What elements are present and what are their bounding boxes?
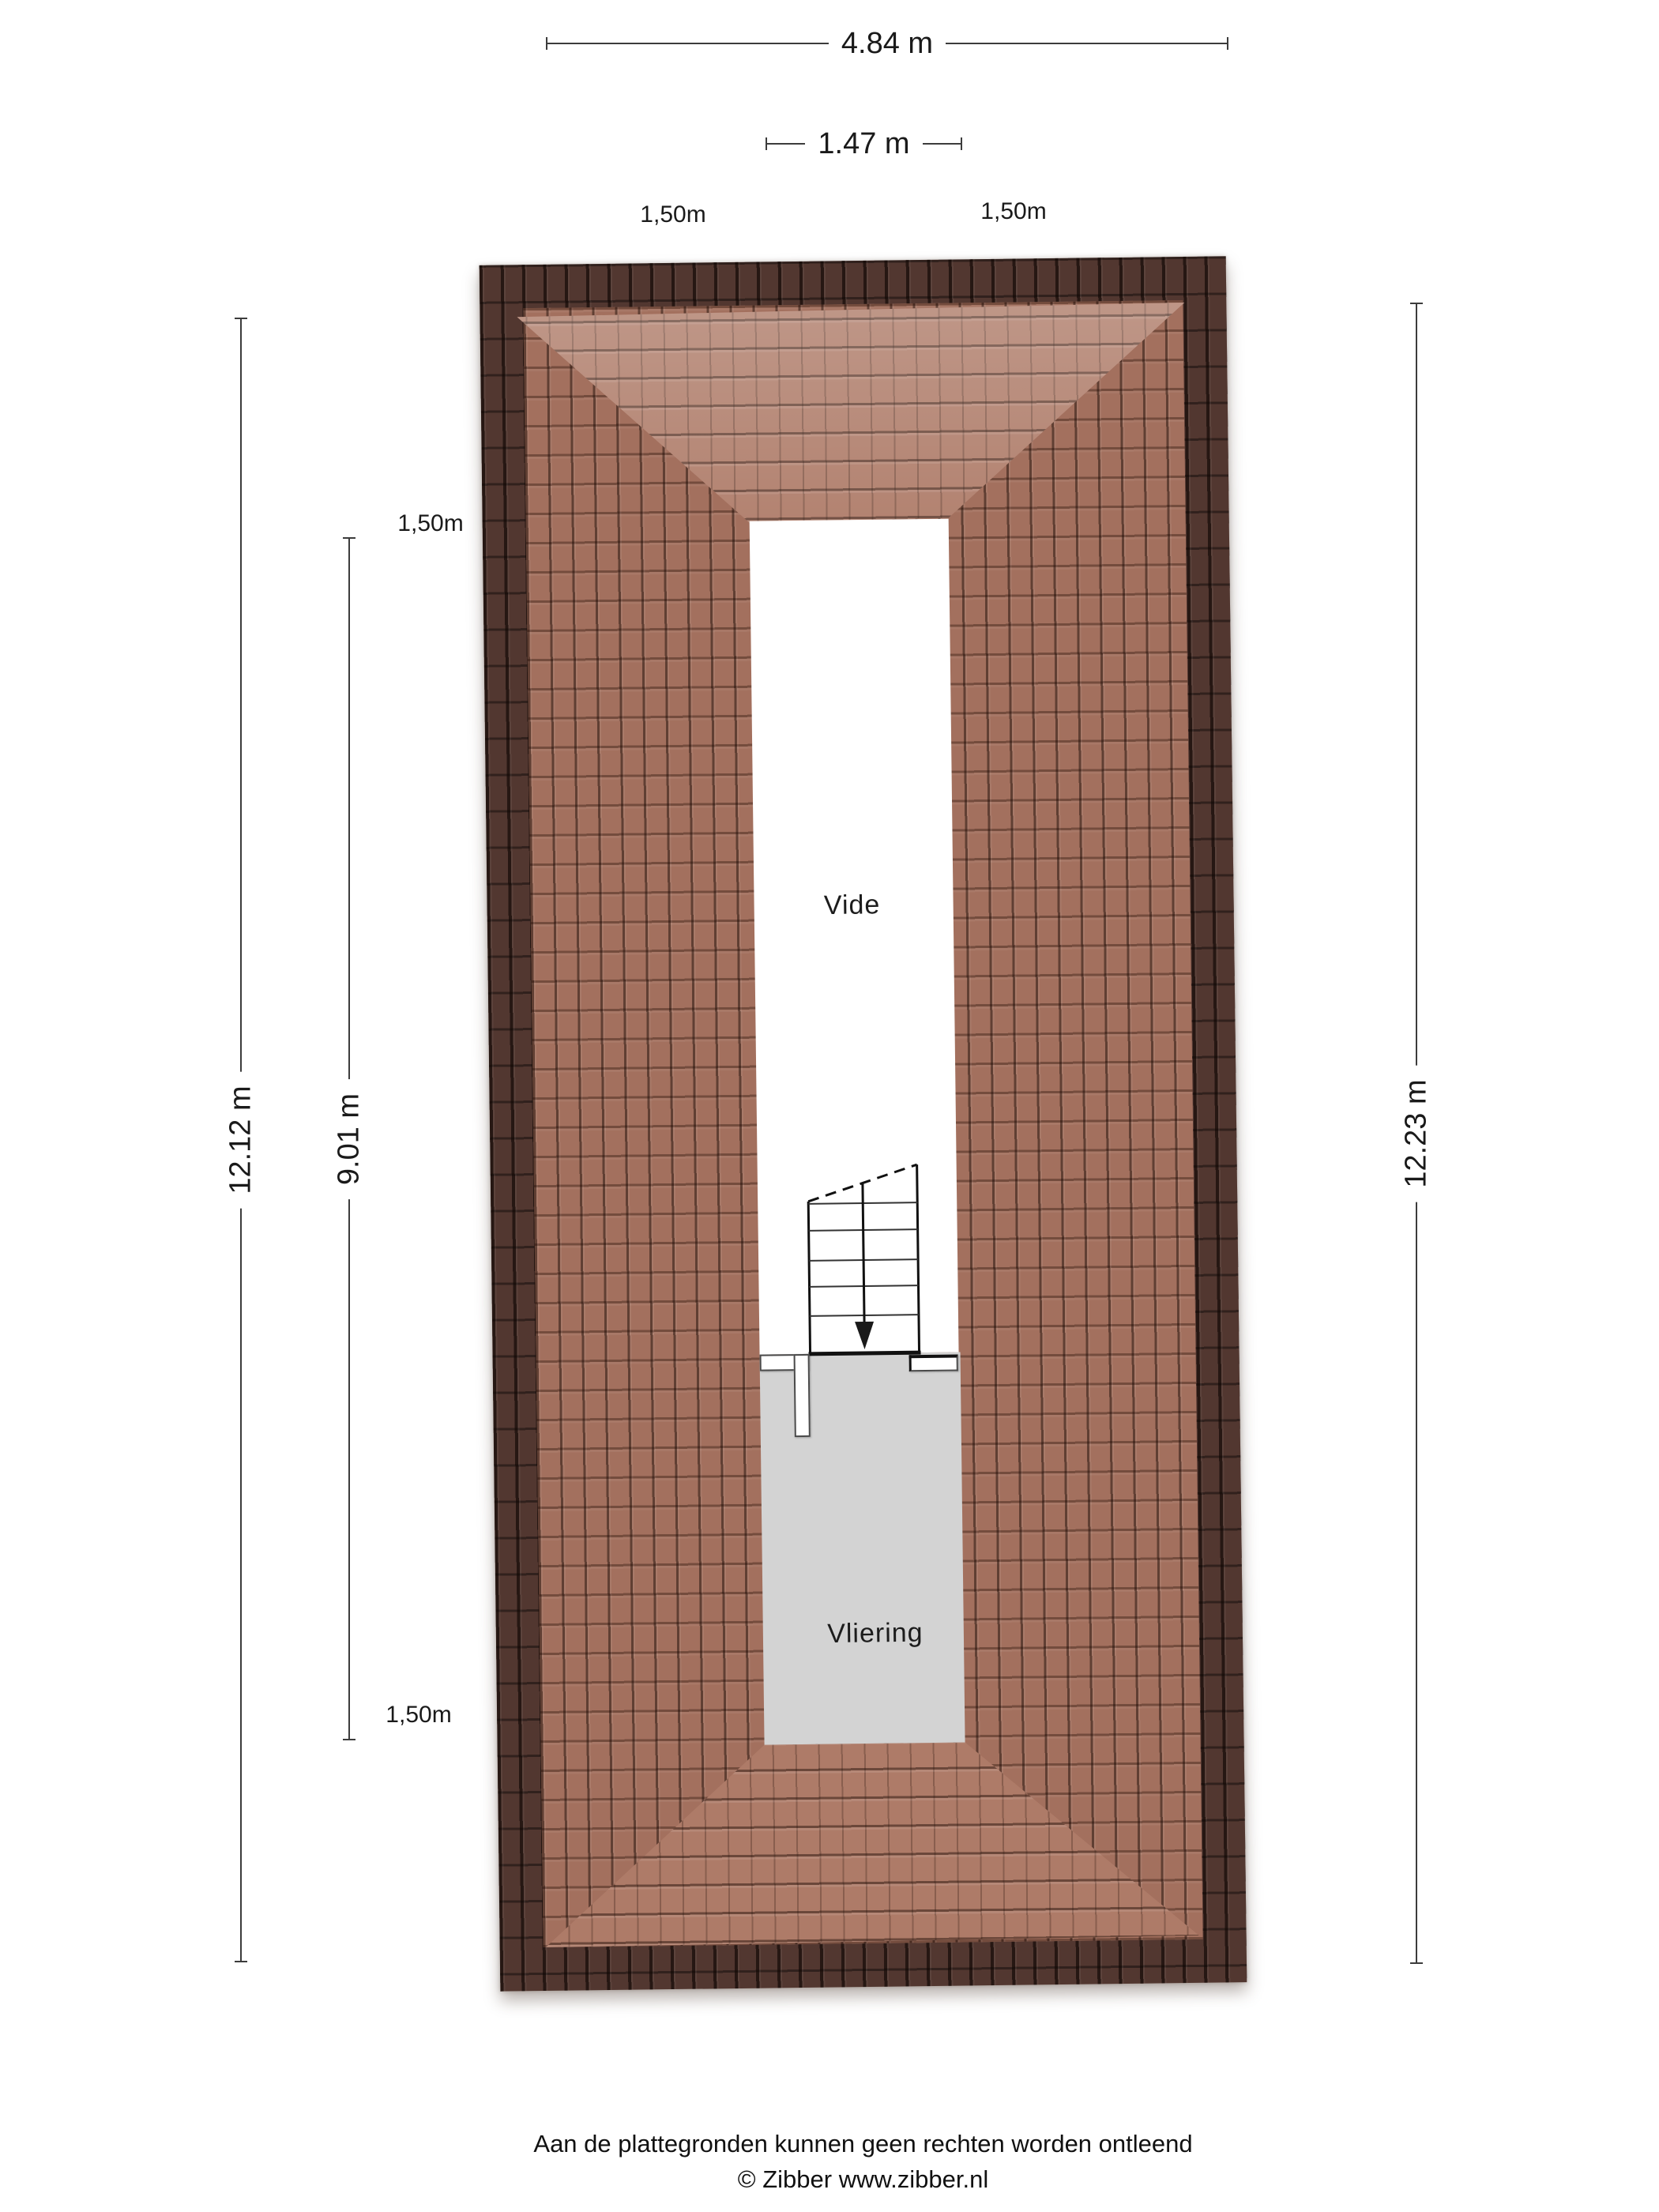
dimension-label: 9.01 m [326,1078,373,1198]
dimension-top-inner: 1.47 m [766,137,962,150]
dimension-label: 4.84 m [829,25,946,62]
dimension-label: 12.23 m [1394,1065,1440,1202]
offset-label-top-right: 1,50m [980,198,1046,225]
footer-disclaimer: Aan de plattegronden kunnen geen rechten… [490,2127,1236,2162]
dimension-left-inner: 9.01 m [343,537,355,1740]
footer: Aan de plattegronden kunnen geen rechten… [490,2127,1236,2198]
room-vliering-area [760,1352,965,1745]
dimension-top-outer: 4.84 m [546,37,1228,50]
dimension-label: 12.12 m [218,1071,265,1208]
roof-plan: Vide Vliering [480,256,1247,1991]
dimension-label: 1.47 m [805,126,922,163]
room-label-vide: Vide [824,890,881,921]
offset-label-left-upper: 1,50m [397,510,463,537]
dimension-right-outer: 12.23 m [1410,303,1423,1964]
staircase-bottom-edge [809,1352,921,1354]
footer-copyright: © Zibber www.zibber.nl [490,2162,1236,2198]
offset-label-left-lower: 1,50m [386,1702,451,1729]
room-label-vliering: Vliering [827,1618,924,1650]
wall-segment-vertical [794,1354,811,1437]
wall-segment-right [909,1355,958,1372]
offset-label-top-left: 1,50m [640,201,705,228]
staircase [803,1159,925,1360]
dimension-left-outer: 12.12 m [235,318,247,1962]
floorplan-page: 4.84 m 1.47 m 1,50m 1,50m 1,50m 1,50m 12… [0,0,1659,2212]
